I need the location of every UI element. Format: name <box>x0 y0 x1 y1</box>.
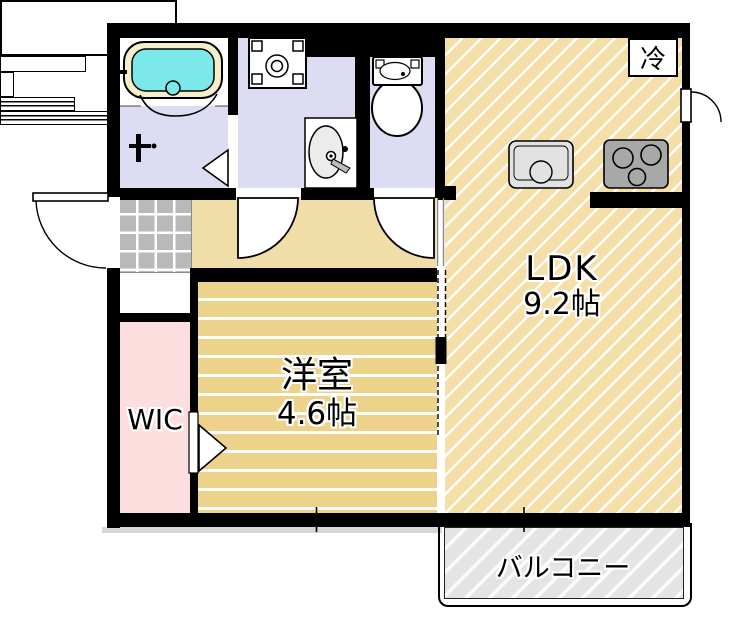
western-area: 4.6帖 <box>217 396 417 432</box>
ldk-area: 9.2帖 <box>462 288 662 322</box>
wall-step-bottom <box>120 313 198 322</box>
wall-kitchen-bar <box>590 192 683 208</box>
balcony-name: バルコニー <box>496 553 630 584</box>
building-shadow <box>102 527 442 533</box>
bathroom-floor <box>120 38 228 106</box>
ldk-room-label: LDK 9.2帖 <box>462 250 662 322</box>
floor-plan: 冷 <box>0 0 756 631</box>
entrance-step <box>120 272 190 313</box>
hall-ldk-track <box>438 198 444 266</box>
wall-wic-right-upper <box>190 268 198 424</box>
western-name: 洋室 <box>217 356 417 396</box>
kitchen-counter-front <box>0 56 86 72</box>
toilet-floor <box>370 57 435 188</box>
wall-right-lower <box>682 122 690 527</box>
wall-hall-a <box>120 188 236 200</box>
hallway-floor <box>192 197 436 268</box>
wall-toilet-left <box>355 57 370 188</box>
tile-step-divider <box>120 272 192 273</box>
wall-right-upper <box>682 23 690 92</box>
balcony-room-label: バルコニー <box>443 546 683 585</box>
ldk-name: LDK <box>462 250 662 288</box>
refrigerator-space: 冷 <box>628 38 678 77</box>
wall-left-upper <box>107 23 120 197</box>
wic-name: WIC <box>127 403 183 436</box>
wic-room-label: WIC <box>105 403 205 436</box>
tile-hall-divider <box>191 197 192 272</box>
washroom-mid-floor <box>238 38 305 188</box>
wall-bottom <box>107 513 690 527</box>
service-door-icon <box>681 89 721 122</box>
entrance-tile <box>120 197 192 272</box>
wall-western-top <box>190 268 437 282</box>
refrigerator-label: 冷 <box>640 39 666 76</box>
wall-hall-stub <box>437 186 456 200</box>
western-room-window <box>0 97 75 111</box>
washroom-window <box>0 72 14 97</box>
washroom-mid-floor-2 <box>305 57 355 188</box>
wall-pipe-space <box>305 23 445 57</box>
wall-hall-b <box>301 188 374 200</box>
wall-toilet-right <box>435 57 445 198</box>
washroom-left-floor <box>120 106 228 188</box>
western-room-label: 洋室 4.6帖 <box>217 356 417 432</box>
wall-wic-right-lower <box>190 472 198 513</box>
entrance-door-icon <box>33 193 108 268</box>
wall-bath-divider <box>228 23 238 115</box>
wall-left-lower <box>107 268 120 528</box>
